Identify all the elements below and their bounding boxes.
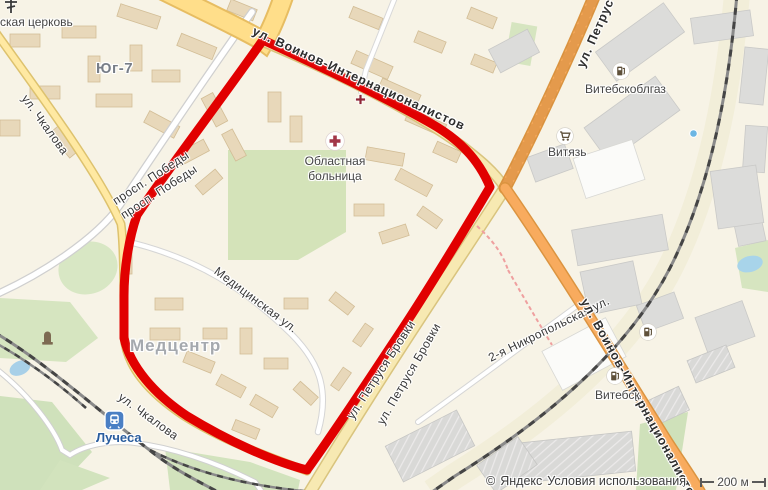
poi-label-vitebskoblgaz[interactable]: Витебскоблгаз	[585, 82, 666, 96]
poi-label-hospital-line2: больница	[300, 169, 370, 184]
district-label-yug7: Юг-7	[96, 60, 133, 77]
scale-value: 200 м	[714, 477, 752, 487]
poi-label-hospital[interactable]: Областная больница	[300, 154, 370, 184]
poi-label-vityaz[interactable]: Витязь	[548, 145, 586, 159]
poi-label-vitebsk[interactable]: Витебск	[595, 388, 640, 402]
scale-line-left	[702, 481, 714, 483]
red-cross-icon	[355, 92, 366, 110]
gas-station-icon[interactable]	[606, 367, 624, 390]
terms-link[interactable]: Условия использования	[547, 474, 686, 488]
scale-bar: 200 м	[700, 477, 766, 487]
monument-icon	[40, 329, 55, 351]
attribution: ©ЯндексУсловия использования	[486, 474, 691, 488]
copyright-symbol: ©	[486, 474, 495, 488]
poi-label-church[interactable]: ская церковь	[0, 15, 73, 29]
poi-label-hospital-line1: Областная	[300, 154, 370, 169]
yandex-link[interactable]: Яндекс	[500, 474, 542, 488]
district-label-medcentr: Медцентр	[130, 336, 221, 356]
scale-right-tick	[764, 478, 766, 487]
scale-line-right	[752, 481, 764, 483]
gas-station-icon[interactable]	[639, 323, 657, 346]
hospital-cross-icon[interactable]	[325, 131, 345, 156]
poi-dot-icon	[689, 125, 698, 143]
map-viewport[interactable]: ул. Воинов-Интернационалистов ул. Петрус…	[0, 0, 768, 490]
poi-label-luchesa[interactable]: Лучеса	[96, 430, 142, 445]
